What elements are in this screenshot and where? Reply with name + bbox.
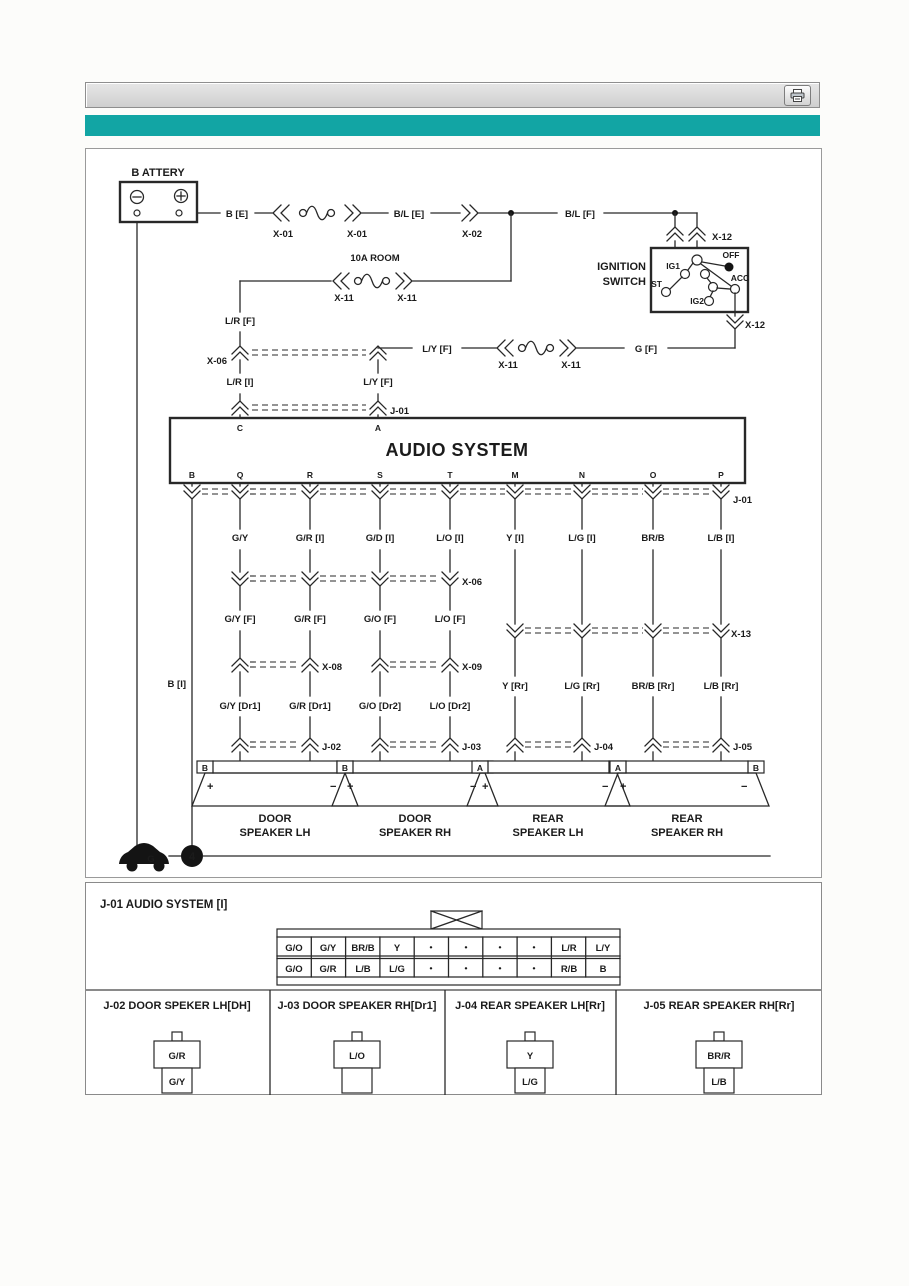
wire-label-lb-i: L/B [I]	[708, 533, 735, 544]
wire-label-gd-i: G/D [I]	[366, 533, 395, 544]
audio-pin-r: R	[307, 470, 313, 480]
connector-label-x11-room-left: X-11	[334, 293, 354, 304]
connector-label-x06-mid: X-06	[462, 577, 482, 588]
speaker-pin-right: B	[753, 763, 759, 773]
connector-label-j01-upper: J-01	[390, 406, 410, 417]
wire-label-gy-dr1: G/Y [Dr1]	[219, 701, 260, 712]
j01-cell: L/G	[389, 964, 405, 975]
speaker-pin-left: B	[342, 763, 348, 773]
battery-label: B ATTERY	[131, 167, 185, 179]
connector-label-j03: J-03	[462, 742, 481, 753]
connector-label-j02: J-02	[322, 742, 341, 753]
connector-label-x06-upper: X-06	[207, 356, 227, 367]
wiring-diagram: B ATTERY B [E] X-01 X-01 B/L [E] X-02 B/…	[85, 148, 822, 878]
audio-system-box: AUDIO SYSTEM C A B Q R S T M N O P	[170, 418, 745, 483]
audio-pin-q: Q	[237, 470, 244, 480]
connector-label-j05: J-05	[733, 742, 753, 753]
speaker-pin-left: B	[202, 763, 208, 773]
audio-pin-p: P	[718, 470, 724, 480]
j01-cell: •	[430, 963, 433, 973]
wire-label-gr-f: G/R [F]	[294, 614, 326, 625]
wire-label-ly-f-line: L/Y [F]	[422, 344, 451, 355]
panel-bottom-wire: G/Y	[169, 1077, 186, 1088]
wire-label-ly-f-col: L/Y [F]	[363, 377, 392, 388]
speaker-plus: +	[620, 781, 626, 793]
wire-label-lg-rr: L/G [Rr]	[564, 681, 599, 692]
connector-label-x01-left: X-01	[273, 229, 294, 240]
page: B ATTERY B [E] X-01 X-01 B/L [E] X-02 B/…	[0, 0, 909, 1286]
j01-panel-title: J-01 AUDIO SYSTEM [I]	[100, 899, 228, 911]
audio-pin-m: M	[511, 470, 518, 480]
ignition-pos-ig2: IG2	[690, 296, 704, 306]
j01-cell: BR/B	[351, 943, 374, 954]
wire-label-go-f: G/O [F]	[364, 614, 396, 625]
j01-cell: B	[600, 964, 607, 975]
j01-cell: •	[465, 963, 468, 973]
connector-label-x13: X-13	[731, 629, 751, 640]
wire-label-y-i: Y [I]	[506, 533, 524, 544]
speaker-name-1: REAR	[532, 813, 563, 825]
j01-cell: •	[499, 942, 502, 952]
speaker-name-1: DOOR	[399, 813, 432, 825]
wire-label-brb-rr: BR/B [Rr]	[632, 681, 675, 692]
j01-cell: G/O	[285, 964, 302, 975]
panel-top-wire: L/O	[349, 1051, 365, 1062]
speaker-name-2: SPEAKER LH	[240, 827, 311, 839]
wire-label-bl-e: B/L [E]	[394, 209, 424, 220]
print-icon	[790, 89, 805, 102]
speaker-pin-left: A	[477, 763, 483, 773]
wire-label-lg-i: L/G [I]	[568, 533, 595, 544]
connector-label-j01-lower: J-01	[733, 495, 753, 506]
j01-cell: •	[499, 963, 502, 973]
j01-cell: G/Y	[320, 943, 337, 954]
speaker-name-2: SPEAKER RH	[379, 827, 451, 839]
audio-pin-o: O	[650, 470, 657, 480]
panel-title: J-03 DOOR SPEAKER RH[Dr1]	[278, 1000, 437, 1012]
wire-label-b-i: B [I]	[168, 679, 186, 690]
speaker-plus: +	[207, 781, 213, 793]
toolbar	[85, 82, 820, 108]
j01-cell: •	[533, 942, 536, 952]
section-title-bar	[85, 115, 820, 136]
ignition-name-2: SWITCH	[603, 276, 646, 288]
speaker-plus: +	[347, 781, 353, 793]
j01-cell: Y	[394, 943, 401, 954]
j01-cell: G/O	[285, 943, 302, 954]
ignition-pos-off: OFF	[723, 250, 740, 260]
audio-pin-n: N	[579, 470, 585, 480]
j01-pinout-panel: J-01 AUDIO SYSTEM [I] G/O G/Y BR/B Y •	[85, 882, 822, 990]
wire-label-lo-i: L/O [I]	[436, 533, 463, 544]
wire-label-b-e: B [E]	[226, 209, 248, 220]
ignition-pos-st: ST	[651, 279, 663, 289]
connector-label-x11-room-right: X-11	[397, 293, 417, 304]
ignition-name-1: IGNITION	[597, 261, 646, 273]
panel-bottom-wire: L/G	[522, 1077, 538, 1088]
wire-label-y-rr: Y [Rr]	[502, 681, 528, 692]
speaker-plus: +	[482, 781, 488, 793]
connector-label-x01-right: X-01	[347, 229, 368, 240]
wire-label-gy: G/Y	[232, 533, 249, 544]
j01-cell: •	[533, 963, 536, 973]
j01-cell: G/R	[320, 964, 337, 975]
ground-node-number: 4	[189, 851, 196, 863]
wire-label-gy-f: G/Y [F]	[225, 614, 256, 625]
j01-cell: •	[465, 942, 468, 952]
j01-cell: L/Y	[596, 943, 611, 954]
panel-title: J-04 REAR SPEAKER LH[Rr]	[455, 1000, 605, 1012]
connector-label-j04: J-04	[594, 742, 614, 753]
connector-label-x11-acc-right: X-11	[561, 360, 581, 371]
wire-label-go-dr2: G/O [Dr2]	[359, 701, 401, 712]
panel-title: J-02 DOOR SPEKER LH[DH]	[103, 1000, 251, 1012]
audio-pin-a: A	[375, 423, 381, 433]
j01-cell: •	[430, 942, 433, 952]
print-button[interactable]	[784, 85, 811, 106]
wire-label-lb-rr: L/B [Rr]	[704, 681, 739, 692]
wire-label-g-f: G [F]	[635, 344, 657, 355]
speaker-name-1: REAR	[671, 813, 702, 825]
connector-label-x11-acc-left: X-11	[498, 360, 518, 371]
wire-label-lo-dr2: L/O [Dr2]	[430, 701, 471, 712]
audio-pin-c: C	[237, 423, 243, 433]
speaker-name-1: DOOR	[259, 813, 292, 825]
speaker-connector-panels: J-02 DOOR SPEKER LH[DH] G/R G/Y J-03 DOO…	[85, 990, 822, 1095]
speaker-name-2: SPEAKER RH	[651, 827, 723, 839]
connector-label-x12-top: X-12	[712, 232, 732, 243]
wire-label-brb: BR/B	[641, 533, 664, 544]
ground-symbol-label: G	[147, 854, 154, 865]
panel-top-wire: G/R	[169, 1051, 186, 1062]
speaker-pin-left: A	[615, 763, 621, 773]
wire-label-gr-dr1: G/R [Dr1]	[289, 701, 331, 712]
connector-label-x09: X-09	[462, 662, 482, 673]
j01-cell: R/B	[561, 964, 578, 975]
speaker-name-2: SPEAKER LH	[513, 827, 584, 839]
speaker-minus: −	[741, 781, 747, 793]
wire-label-lo-f: L/O [F]	[435, 614, 466, 625]
connector-label-x12-bottom: X-12	[745, 320, 765, 331]
panel-top-wire: Y	[527, 1051, 534, 1062]
audio-pin-t: T	[447, 470, 453, 480]
ignition-pos-ig1: IG1	[666, 261, 680, 271]
wire-label-lr-f: L/R [F]	[225, 316, 255, 327]
wire-label-lr-i: L/R [I]	[227, 377, 254, 388]
j01-cell: L/R	[561, 943, 576, 954]
j01-cell: L/B	[355, 964, 370, 975]
audio-pin-s: S	[377, 470, 383, 480]
panel-title: J-05 REAR SPEAKER RH[Rr]	[644, 1000, 795, 1012]
speaker-minus: −	[602, 781, 608, 793]
connector-label-x08: X-08	[322, 662, 342, 673]
wire-label-gr-i: G/R [I]	[296, 533, 325, 544]
fuse-room-label: 10A ROOM	[350, 253, 399, 264]
connector-label-x02: X-02	[462, 229, 482, 240]
ignition-pos-acc: ACC	[731, 273, 749, 283]
panel-bottom-wire: L/B	[711, 1077, 726, 1088]
panel-top-wire: BR/R	[707, 1051, 730, 1062]
audio-system-title: AUDIO SYSTEM	[385, 440, 528, 460]
audio-pin-b: B	[189, 470, 195, 480]
speaker-minus: −	[330, 781, 336, 793]
wire-label-bl-f: B/L [F]	[565, 209, 595, 220]
